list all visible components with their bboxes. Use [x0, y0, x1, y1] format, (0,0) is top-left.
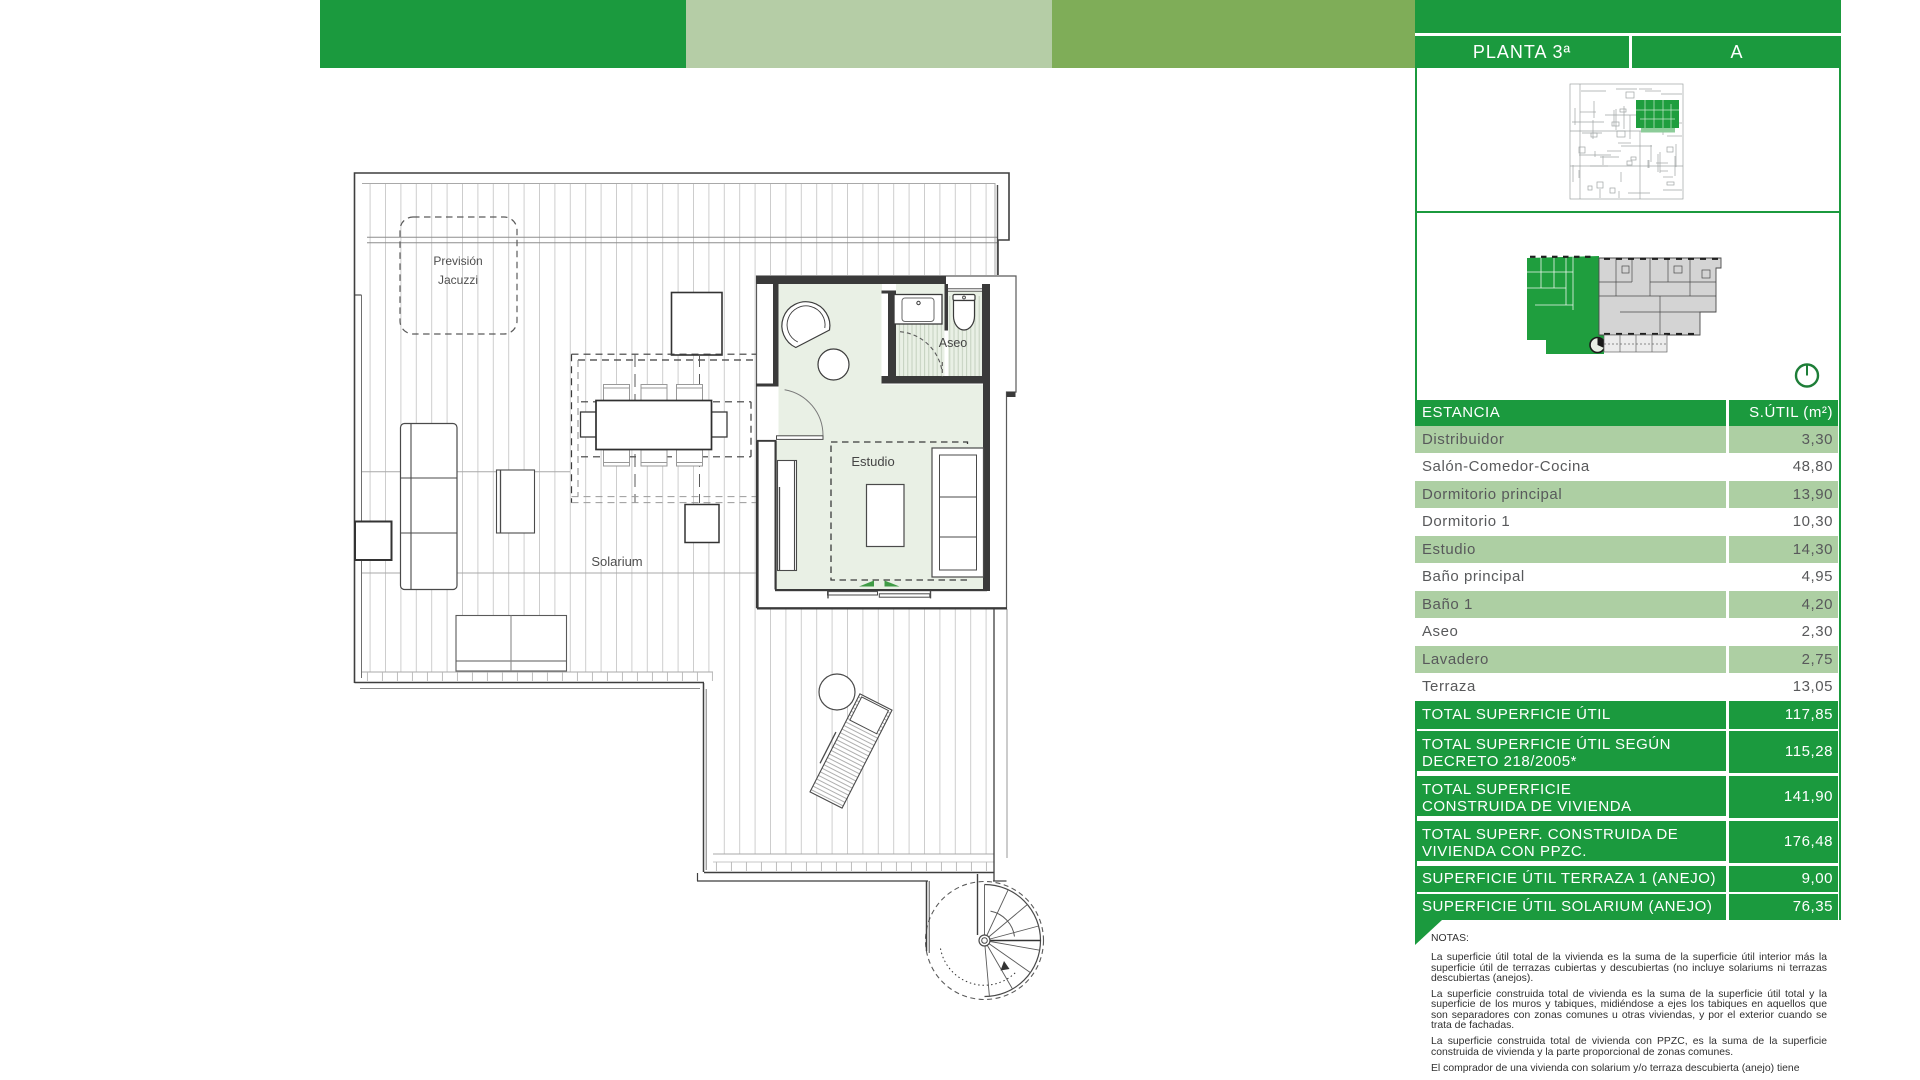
svg-text:Estudio: Estudio — [851, 454, 894, 469]
svg-text:Previsión: Previsión — [433, 254, 482, 268]
svg-text:Jacuzzi: Jacuzzi — [438, 273, 478, 287]
svg-text:Aseo: Aseo — [939, 336, 968, 350]
svg-text:Solarium: Solarium — [591, 554, 642, 569]
